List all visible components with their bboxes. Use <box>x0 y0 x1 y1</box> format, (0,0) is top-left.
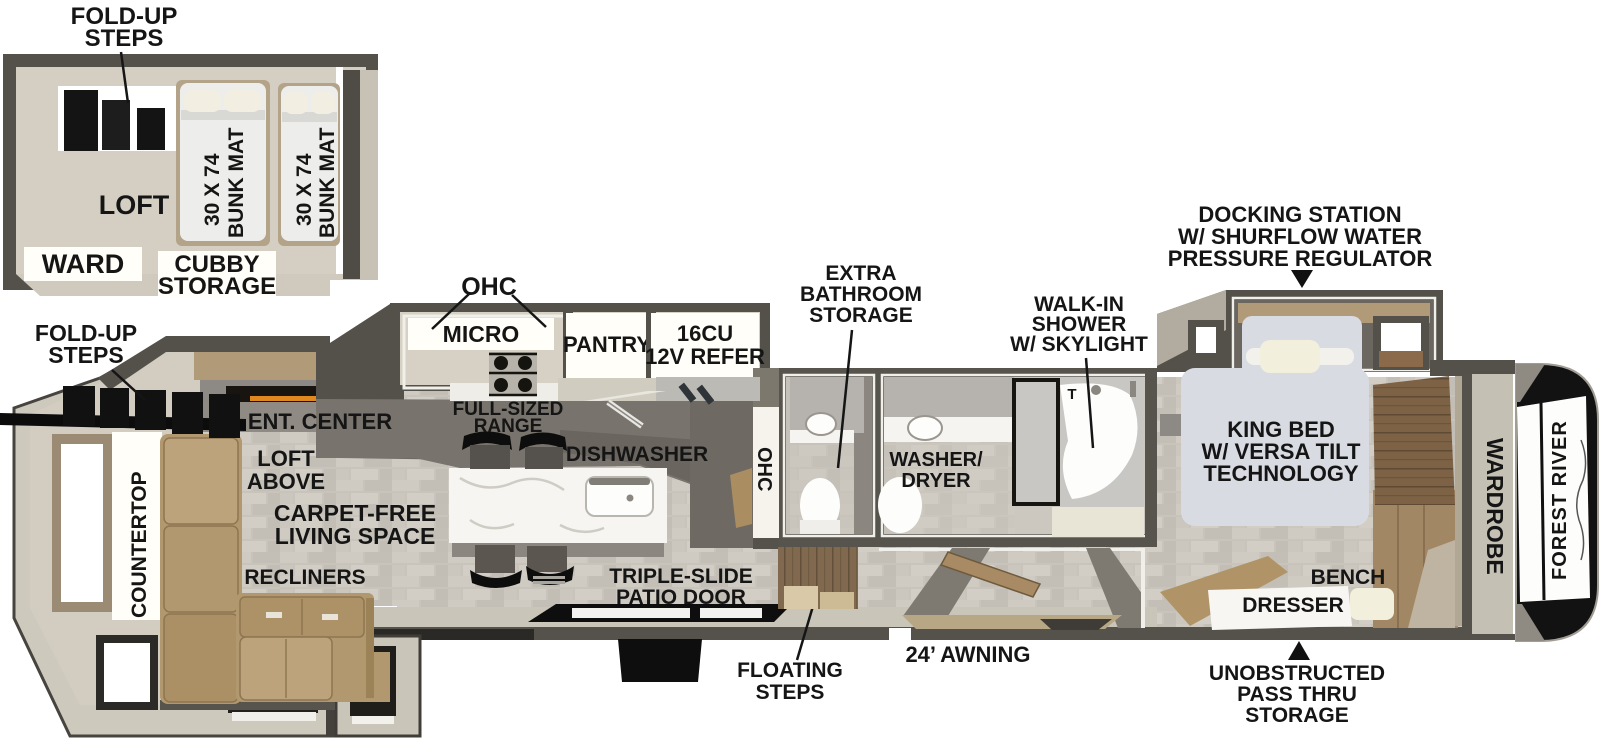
svg-text:30 X 74: 30 X 74 <box>293 153 316 226</box>
svg-text:ABOVE: ABOVE <box>247 469 325 494</box>
svg-text:EXTRA: EXTRA <box>825 262 896 285</box>
svg-text:ENT. CENTER: ENT. CENTER <box>248 409 392 434</box>
svg-text:BATHROOM: BATHROOM <box>800 283 922 306</box>
svg-text:TRIPLE-SLIDE: TRIPLE-SLIDE <box>609 565 753 588</box>
svg-text:STEPS: STEPS <box>85 25 164 52</box>
svg-text:STORAGE: STORAGE <box>158 273 276 300</box>
svg-text:24’ AWNING: 24’ AWNING <box>905 642 1030 667</box>
svg-text:BUNK MAT: BUNK MAT <box>316 127 339 238</box>
svg-text:STORAGE: STORAGE <box>1245 704 1348 727</box>
svg-text:RANGE: RANGE <box>474 416 543 437</box>
svg-text:WARD: WARD <box>42 249 125 279</box>
svg-text:12V REFER: 12V REFER <box>645 344 765 369</box>
svg-text:FLOATING: FLOATING <box>737 659 843 682</box>
svg-text:RECLINERS: RECLINERS <box>244 566 365 589</box>
svg-text:BENCH: BENCH <box>1311 566 1386 589</box>
svg-text:STORAGE: STORAGE <box>809 304 912 327</box>
svg-text:DRYER: DRYER <box>901 470 971 492</box>
svg-text:STEPS: STEPS <box>48 342 123 368</box>
svg-text:30 X 74: 30 X 74 <box>201 153 224 226</box>
svg-text:LOFT: LOFT <box>99 190 170 220</box>
svg-text:OHC: OHC <box>753 447 775 491</box>
svg-text:WARDROBE: WARDROBE <box>1482 438 1508 575</box>
svg-text:WASHER/: WASHER/ <box>889 449 983 471</box>
svg-text:TECHNOLOGY: TECHNOLOGY <box>1203 461 1359 486</box>
svg-text:MICRO: MICRO <box>443 321 520 347</box>
svg-text:T: T <box>1067 386 1076 403</box>
svg-text:DRESSER: DRESSER <box>1242 594 1344 617</box>
svg-text:DISHWASHER: DISHWASHER <box>566 443 708 466</box>
svg-text:LOFT: LOFT <box>257 446 315 471</box>
svg-text:W/ SKYLIGHT: W/ SKYLIGHT <box>1010 333 1148 356</box>
svg-text:LIVING SPACE: LIVING SPACE <box>275 523 436 549</box>
svg-text:STEPS: STEPS <box>756 681 825 704</box>
svg-text:UNOBSTRUCTED: UNOBSTRUCTED <box>1209 662 1385 685</box>
svg-text:16CU: 16CU <box>677 321 733 346</box>
svg-text:PASS THRU: PASS THRU <box>1237 683 1357 706</box>
svg-text:PANTRY: PANTRY <box>563 332 651 357</box>
svg-text:BUNK MAT: BUNK MAT <box>225 127 248 238</box>
svg-text:COUNTERTOP: COUNTERTOP <box>128 471 151 618</box>
svg-text:OHC: OHC <box>461 273 517 301</box>
svg-text:FOREST RIVER: FOREST RIVER <box>1549 420 1571 580</box>
svg-text:PRESSURE REGULATOR: PRESSURE REGULATOR <box>1168 246 1433 271</box>
